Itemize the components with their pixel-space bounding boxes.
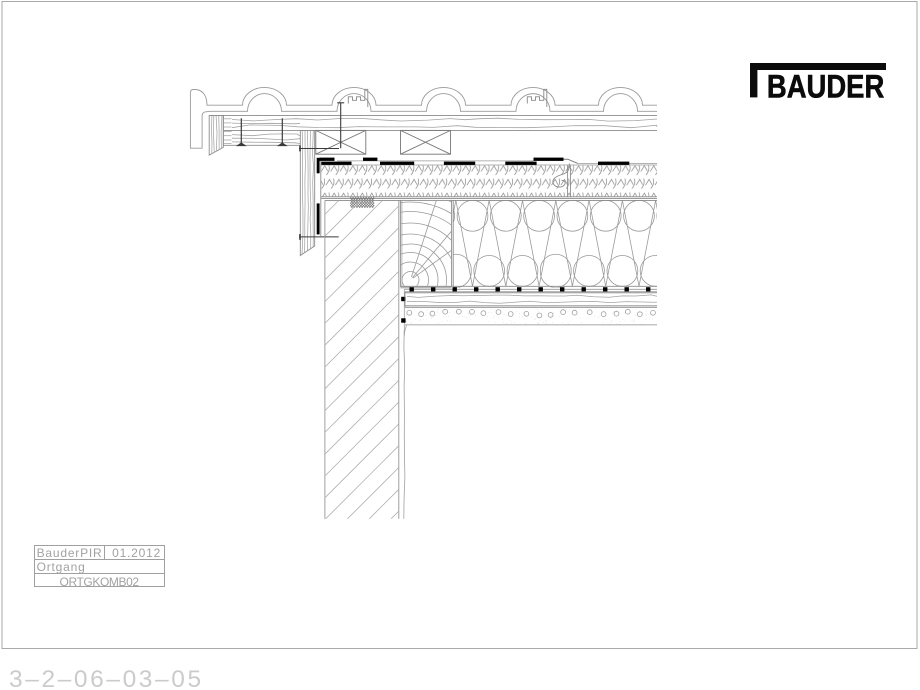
svg-text:BAUDER: BAUDER <box>767 68 884 98</box>
